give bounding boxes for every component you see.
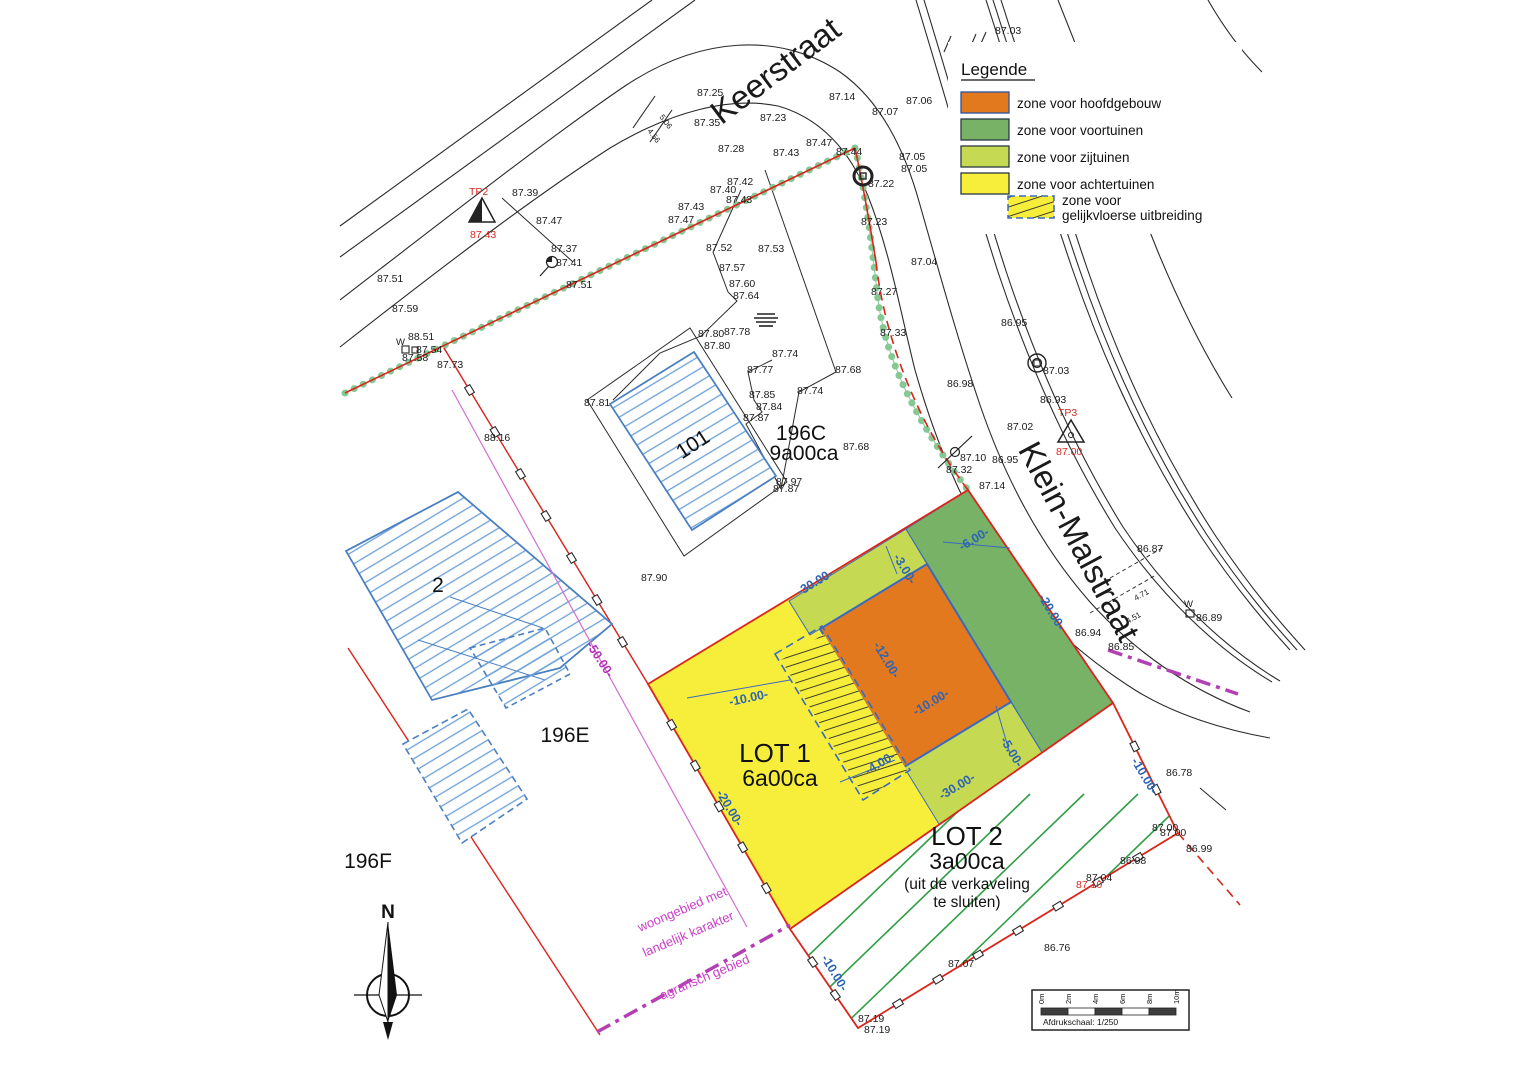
elevation-label: 87.05 [899,151,925,163]
scale-tick-label: 4m [1091,994,1100,1004]
elevation-label: 87.00 [1056,446,1082,458]
elevation-label: 87.59 [392,303,418,315]
scale-bar: 0m2m4m6m8m10m Afdrukschaal: 1/250 [1032,989,1189,1030]
lot2-note-1: (uit de verkaveling [904,876,1030,893]
parcel-196e: 196E [540,724,589,747]
legend-item-2: zone voor voortuinen [1017,123,1143,138]
scale-segment [1068,1008,1095,1015]
elevation-label: 87.90 [641,572,667,584]
legend-item-1: zone voor hoofdgebouw [1017,96,1161,111]
scale-tick-label: 0m [1037,994,1046,1004]
background [0,0,1528,1080]
elevation-label: 87.80 [704,340,730,352]
elevation-label: 87.52 [706,242,732,254]
elevation-label: 87.10 [960,452,986,464]
elevation-label: 87.28 [718,143,744,155]
elevation-label: 87.68 [843,441,869,453]
elevation-label: 87.47 [536,215,562,227]
legend-swatch-uitbreiding [1008,196,1054,218]
elevation-label: 88.16 [484,432,510,444]
elevation-label: 87.87 [743,412,769,424]
elevation-label: 86.98 [1120,855,1146,867]
elevation-label: 87.03 [995,25,1021,37]
elevation-label: W [396,337,405,348]
elevation-label: 87.78 [724,326,750,338]
elevation-label: 87.22 [868,178,894,190]
elevation-label: 87.05 [901,163,927,175]
elevation-label: 87.85 [749,389,775,401]
elevation-label: 87.32 [946,464,972,476]
elevation-label: 87.06 [906,95,932,107]
scale-bar-segments [1041,1008,1176,1015]
lot2-area: 3a00ca [929,848,1005,874]
elevation-label: 87.43 [773,147,799,159]
elevation-label: 86.93 [1040,394,1066,406]
elevation-label: 87.60 [729,278,755,290]
elevation-label: 86.76 [1044,942,1070,954]
elevation-label: 87.41 [556,257,582,269]
scale-segment [1149,1008,1176,1015]
elevation-label: 87.00 [1160,827,1186,839]
legend-swatch-ac [961,173,1009,194]
legend-item-5b: gelijkvloerse uitbreiding [1062,208,1202,223]
elevation-label: 87.02 [1007,421,1033,433]
elevation-label: 87.73 [437,359,463,371]
elevation-label: 87.43 [678,201,704,213]
scale-tick-label: 6m [1118,994,1127,1004]
elevation-label: W [1184,599,1193,610]
elevation-label: 87.07 [872,106,898,118]
elevation-label: 87.23 [760,112,786,124]
elevation-label: 86.94 [1075,627,1101,639]
elevation-label: 87.47 [806,137,832,149]
elevation-label: 87.58 [402,352,428,364]
elevation-label: TP3 [1058,407,1077,419]
legend-swatch-zi [961,146,1009,167]
elevation-label: 87.74 [772,348,798,360]
legend-item-3: zone voor zijtuinen [1017,150,1130,165]
elevation-label: 86.87 [1137,543,1163,555]
legend-item-5a: zone voor [1062,193,1122,208]
legend: Legende zone voor hoofdgebouw zone voor … [948,42,1242,234]
legend-swatch-vo [961,119,1009,140]
scale-caption: Afdrukschaal: 1/250 [1043,1017,1118,1027]
parcel-2: 2 [432,574,444,597]
elevation-label: 86.89 [1196,612,1222,624]
scale-tick-label: 10m [1172,989,1181,1004]
legend-swatch-ho [961,92,1009,113]
elevation-label: 87.04 [911,256,937,268]
scale-tick-label: 2m [1064,994,1073,1004]
elevation-label: 87.74 [797,385,823,397]
legend-title: Legende [961,60,1027,79]
parcel-196c-area: 9a00ca [770,442,839,465]
elevation-label: 87.44 [836,146,862,158]
elevation-label: 87.81 [584,397,610,409]
elevation-label: 86.99 [1186,843,1212,855]
parcel-196f: 196F [344,850,392,873]
elevation-label: 87.33 [880,327,906,339]
lot2-note-2: te sluiten) [933,894,1000,911]
lot1-area: 6a00ca [742,765,818,791]
elevation-label: 87.14 [829,91,855,103]
elevation-label: 87.07 [948,958,974,970]
lot1-name: LOT 1 [739,738,811,768]
scale-tick-label: 8m [1145,994,1154,1004]
scale-segment [1095,1008,1122,1015]
elevation-label: 87.43 [470,229,496,241]
elevation-label: 87.03 [1043,365,1069,377]
elevation-label: 86.78 [1166,767,1192,779]
elevation-label: 87.27 [871,286,897,298]
elevation-label: 87.77 [747,364,773,376]
lot2-name: LOT 2 [931,821,1003,851]
elevation-label: 88.51 [408,331,434,343]
elevation-label: 87.39 [512,187,538,199]
cadastral-plan: 87.2587.3587.2887.2387.1487.0787.0687.05… [0,0,1528,1080]
elevation-label: 87.37 [551,243,577,255]
elevation-label: 86.98 [947,378,973,390]
elevation-label: 87.64 [733,290,759,302]
elevation-label: 87.23 [861,216,887,228]
elevation-label: 87.14 [979,480,1005,492]
elevation-label: 87.19 [864,1024,890,1036]
scale-segment [1041,1008,1068,1015]
compass-north-label: N [381,902,395,923]
elevation-label: 87.47 [668,214,694,226]
elevation-label: 87.87 [773,483,799,495]
elevation-label: 87.53 [758,243,784,255]
scale-segment [1122,1008,1149,1015]
elevation-label: 87.57 [719,262,745,274]
elevation-label: 87.10 [1076,879,1102,891]
elevation-label: 87.68 [835,364,861,376]
elevation-label: TP2 [469,186,488,198]
elevation-label: 87.51 [377,273,403,285]
elevation-label: 87.80 [698,328,724,340]
elevation-label: 87.43 [726,194,752,206]
legend-item-4: zone voor achtertuinen [1017,177,1154,192]
elevation-label: 86.95 [1001,317,1027,329]
elevation-label: 87.51 [566,279,592,291]
